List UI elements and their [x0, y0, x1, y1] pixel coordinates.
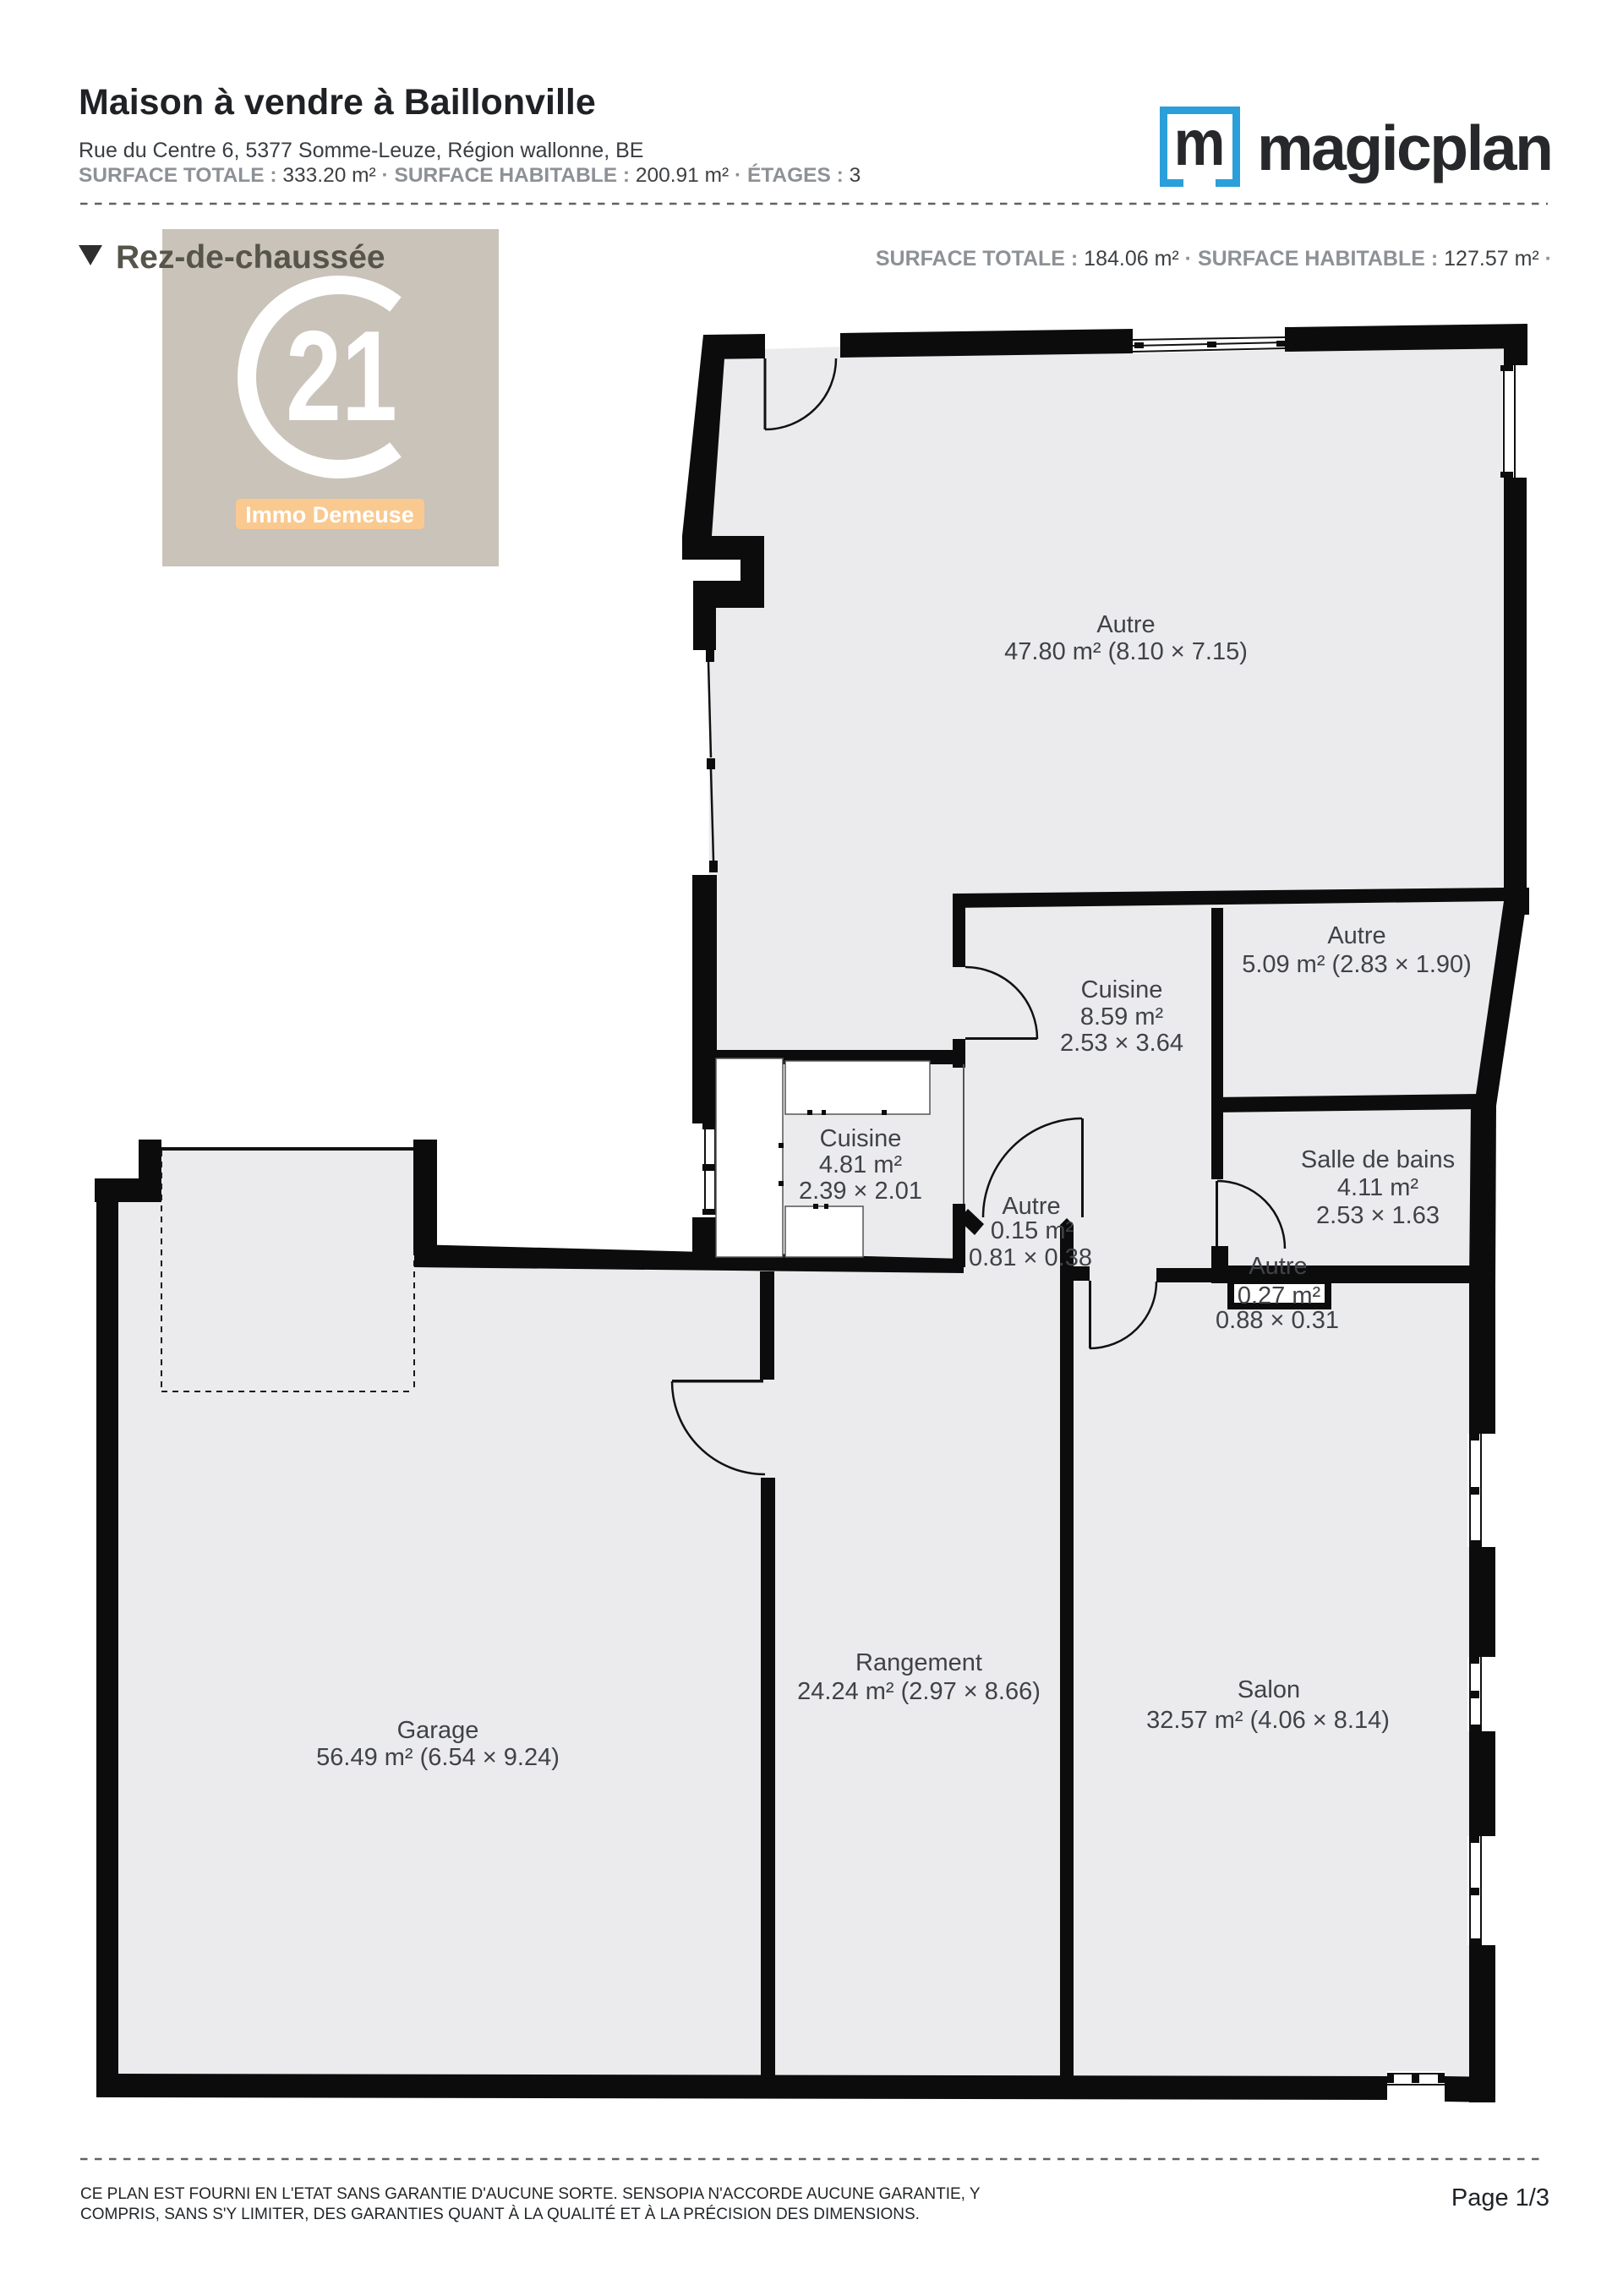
svg-text:2.53 × 3.64: 2.53 × 3.64 [1060, 1030, 1183, 1057]
svg-text:47.80 m² (8.10 × 7.15): 47.80 m² (8.10 × 7.15) [1004, 638, 1248, 665]
svg-text:4.81 m²: 4.81 m² [819, 1151, 903, 1178]
svg-text:m: m [1174, 108, 1226, 179]
svg-text:Cuisine: Cuisine [1081, 976, 1163, 1003]
svg-text:0.81 × 0.38: 0.81 × 0.38 [969, 1244, 1092, 1271]
svg-text:0.88 × 0.31: 0.88 × 0.31 [1216, 1307, 1339, 1334]
svg-text:magicplan: magicplan [1257, 112, 1551, 183]
svg-text:Rue du Centre 6, 5377 Somme-Le: Rue du Centre 6, 5377 Somme-Leuze, Régio… [79, 139, 643, 162]
svg-text:SURFACE TOTALE : 184.06 m² ·: SURFACE TOTALE : 184.06 m² · SURFACE HAB… [876, 247, 1552, 271]
svg-text:Cuisine: Cuisine [820, 1125, 902, 1152]
svg-text:Autre: Autre [1096, 611, 1155, 638]
svg-text:32.57 m² (4.06 × 8.14): 32.57 m² (4.06 × 8.14) [1146, 1707, 1390, 1734]
svg-text:24.24 m² (2.97 × 8.66): 24.24 m² (2.97 × 8.66) [797, 1678, 1041, 1705]
svg-text:Immo Demeuse: Immo Demeuse [245, 502, 414, 528]
svg-text:0.27 m²: 0.27 m² [1238, 1282, 1321, 1309]
svg-text:Autre: Autre [1002, 1193, 1060, 1220]
svg-text:Rez-de-chaussée: Rez-de-chaussée [116, 239, 385, 276]
svg-text:Maison à vendre à Baillonville: Maison à vendre à Baillonville [79, 82, 596, 123]
svg-text:Rangement: Rangement [855, 1649, 982, 1676]
svg-text:4.11 m²: 4.11 m² [1337, 1174, 1419, 1201]
svg-text:Autre: Autre [1327, 922, 1385, 949]
svg-text:0.15 m²: 0.15 m² [991, 1217, 1074, 1244]
svg-text:2.39 × 2.01: 2.39 × 2.01 [799, 1178, 922, 1205]
svg-text:Salle de bains: Salle de bains [1301, 1146, 1455, 1173]
svg-text:CE PLAN EST FOURNI EN L'ETAT S: CE PLAN EST FOURNI EN L'ETAT SANS GARANT… [80, 2185, 981, 2203]
svg-text:Page 1/3: Page 1/3 [1451, 2184, 1549, 2211]
svg-text:8.59 m²: 8.59 m² [1080, 1003, 1164, 1030]
svg-text:21: 21 [286, 304, 397, 447]
svg-text:56.49 m² (6.54 × 9.24): 56.49 m² (6.54 × 9.24) [316, 1744, 560, 1771]
svg-text:Salon: Salon [1238, 1676, 1300, 1703]
svg-text:Garage: Garage [397, 1717, 479, 1744]
svg-text:5.09 m² (2.83 × 1.90): 5.09 m² (2.83 × 1.90) [1242, 951, 1472, 978]
svg-text:2.53 × 1.63: 2.53 × 1.63 [1316, 1202, 1440, 1229]
svg-text:Autre: Autre [1249, 1253, 1307, 1280]
svg-text:SURFACE TOTALE : 333.20 m² · S: SURFACE TOTALE : 333.20 m² · SURFACE HAB… [79, 163, 861, 187]
svg-text:COMPRIS, SANS S'Y LIMITER, DES: COMPRIS, SANS S'Y LIMITER, DES GARANTIES… [80, 2206, 920, 2223]
